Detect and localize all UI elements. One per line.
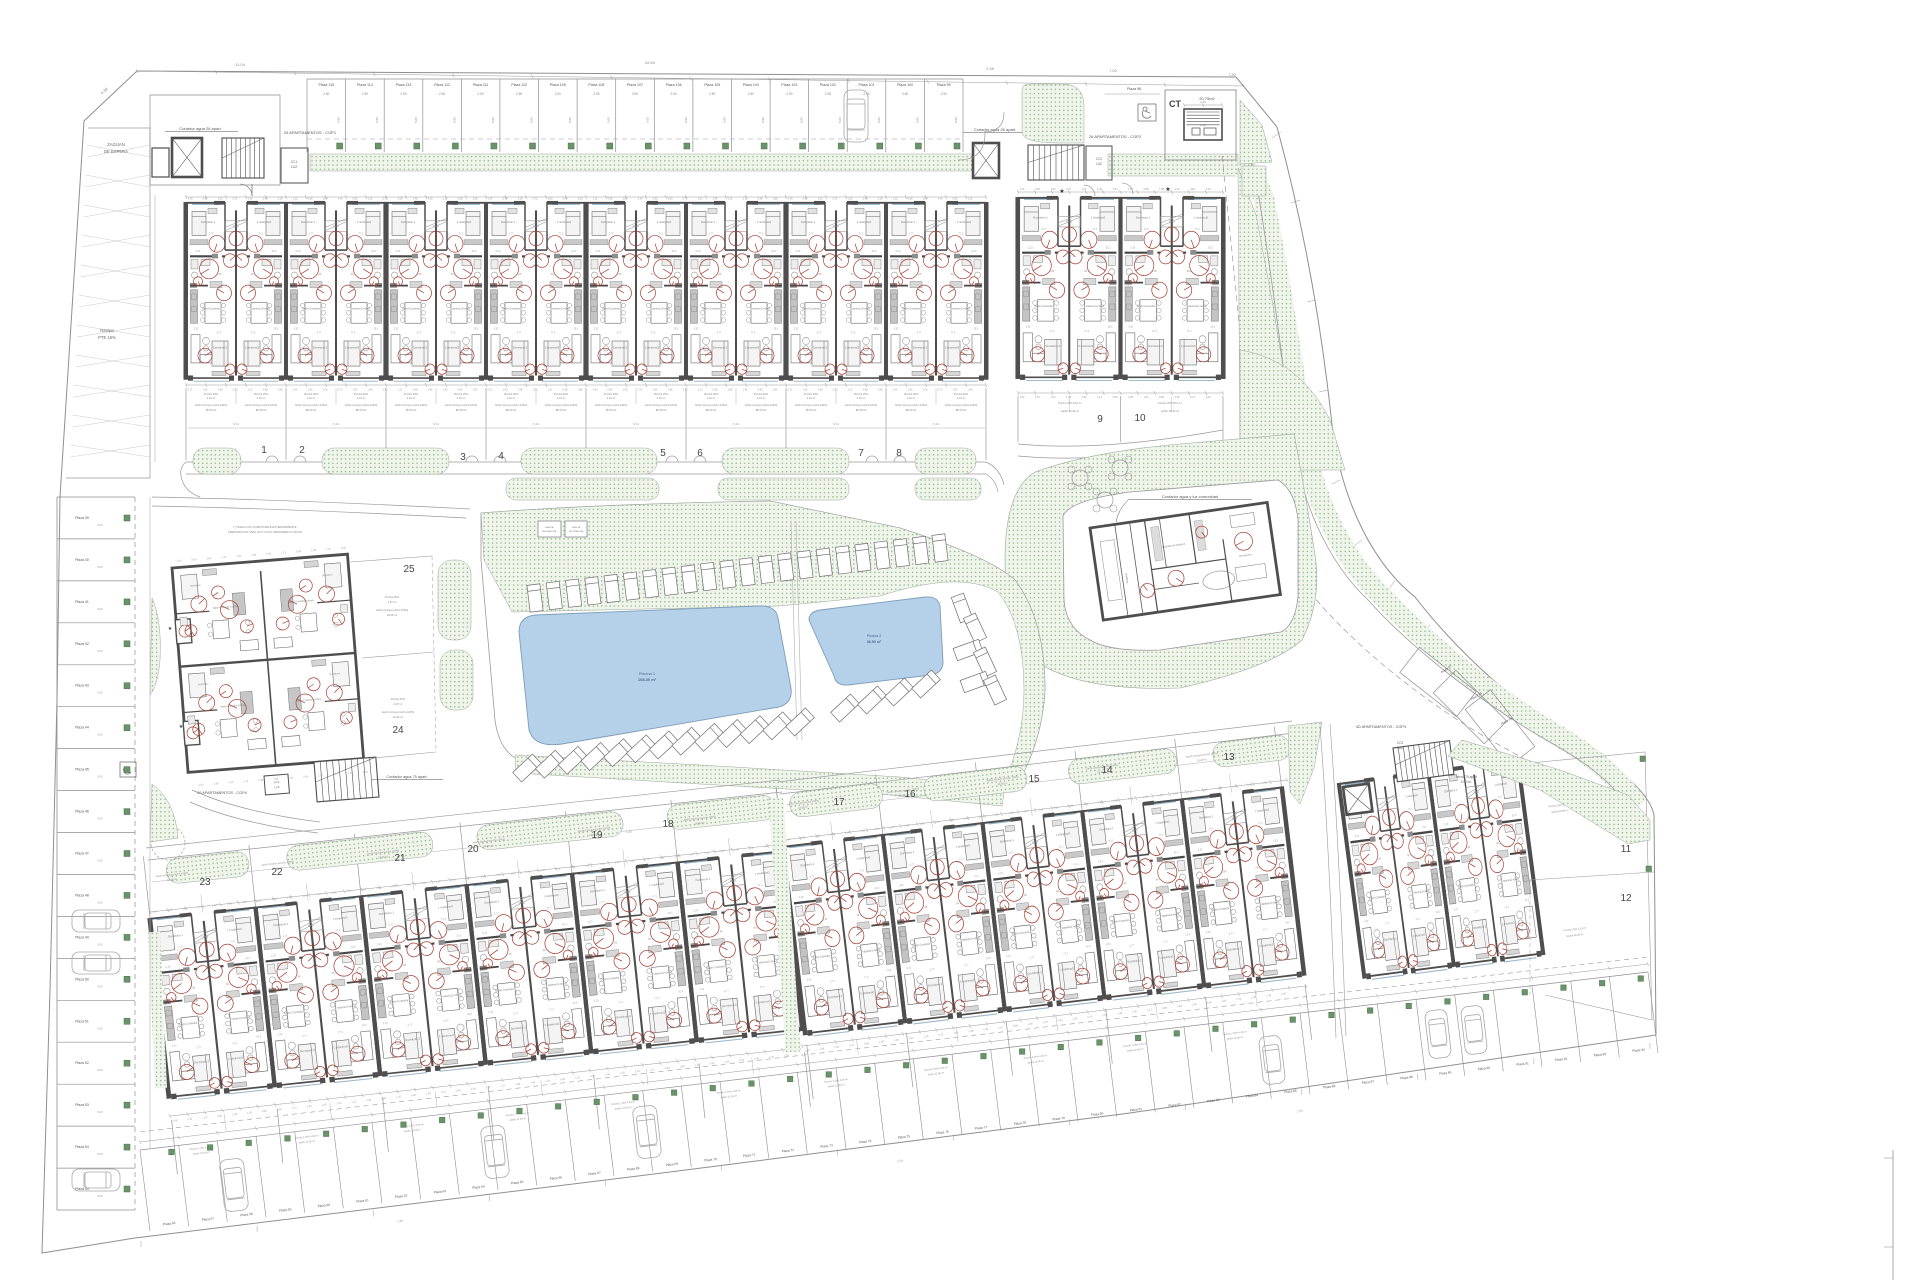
svg-text:Jardín (incluye porche 100%): Jardín (incluye porche 100%) [645, 404, 678, 407]
svg-text:1.48: 1.48 [1097, 188, 1102, 191]
svg-text:0.90: 0.90 [953, 198, 958, 201]
svg-text:1.88: 1.88 [550, 273, 555, 276]
svg-text:5.00: 5.00 [97, 984, 103, 988]
svg-text:Contador agua 75 apart.: Contador agua 75 apart. [386, 775, 427, 779]
svg-text:2.50: 2.50 [323, 92, 329, 96]
svg-text:5.00: 5.00 [97, 1026, 103, 1030]
svg-text:LUZ: LUZ [274, 785, 280, 789]
svg-text:5.00: 5.00 [97, 859, 103, 863]
svg-text:5.00: 5.00 [722, 117, 726, 123]
svg-text:Paso: Paso [1232, 816, 1238, 821]
svg-text:1.40: 1.40 [638, 198, 643, 201]
svg-text:Dormitorio 2: Dormitorio 2 [313, 345, 328, 349]
svg-text:1.40: 1.40 [293, 389, 298, 392]
svg-text:0.90: 0.90 [353, 198, 358, 201]
svg-text:5.00: 5.00 [838, 117, 842, 123]
svg-text:2.10: 2.10 [1200, 123, 1206, 127]
svg-text:13: 13 [1223, 752, 1235, 763]
svg-text:Jardín (incluye porche 100%): Jardín (incluye porche 100%) [545, 404, 578, 407]
svg-text:6: 6 [697, 448, 703, 459]
svg-text:1.60: 1.60 [1051, 396, 1056, 399]
svg-text:5.00: 5.00 [97, 775, 103, 779]
svg-text:2.77: 2.77 [350, 332, 355, 335]
svg-text:4.10 m²: 4.10 m² [357, 396, 366, 400]
svg-text:1.12: 1.12 [848, 389, 853, 392]
svg-text:Paso: Paso [730, 878, 737, 883]
svg-text:0.90: 0.90 [608, 389, 613, 392]
svg-text:1.50: 1.50 [623, 389, 628, 392]
svg-text:1.88: 1.88 [273, 777, 279, 780]
svg-text:Paso: Paso [519, 901, 526, 906]
svg-text:4.10 m²: 4.10 m² [807, 396, 816, 400]
svg-text:1.50: 1.50 [773, 389, 778, 392]
svg-text:0.98: 0.98 [308, 198, 313, 201]
svg-text:36.50 m²: 36.50 m² [867, 640, 882, 644]
svg-text:1.88: 1.88 [317, 273, 322, 276]
svg-text:2.23: 2.23 [1028, 246, 1033, 249]
svg-text:Salón-Comedor: Salón-Comedor [552, 307, 570, 311]
svg-text:1.50: 1.50 [818, 198, 823, 201]
svg-text:5.00: 5.00 [97, 1152, 103, 1156]
svg-text:Plaza 47: Plaza 47 [75, 852, 89, 856]
svg-text:3.32: 3.32 [873, 327, 878, 330]
svg-text:Salón-Comedor: Salón-Comedor [952, 307, 970, 311]
svg-text:Dormitorio 1: Dormitorio 1 [201, 220, 216, 224]
svg-text:2.77: 2.77 [809, 874, 815, 879]
svg-text:Paso: Paso [933, 225, 939, 228]
svg-text:Dormitorio 1: Dormitorio 1 [1033, 215, 1048, 219]
svg-text:0.98: 0.98 [1113, 396, 1118, 399]
svg-text:6.31: 6.31 [333, 422, 339, 426]
svg-text:2.77: 2.77 [750, 332, 755, 335]
svg-text:38.70 m²: 38.70 m² [656, 408, 667, 412]
svg-text:0.72: 0.72 [188, 389, 193, 392]
svg-text:Porche 25%: Porche 25% [654, 392, 669, 396]
svg-text:Paso: Paso [333, 225, 339, 228]
svg-text:2.30: 2.30 [228, 781, 234, 784]
svg-text:Jardín (incluye porche 100%): Jardín (incluye porche 100%) [745, 404, 778, 407]
svg-text:5.00: 5.00 [97, 942, 103, 946]
svg-text:Jardín (incluye porche 100%): Jardín (incluye porche 100%) [495, 404, 528, 407]
svg-text:Dormitorio 2: Dormitorio 2 [513, 345, 528, 349]
svg-text:1.40: 1.40 [788, 198, 793, 201]
svg-text:2.50: 2.50 [897, 1159, 904, 1164]
svg-text:4: 4 [498, 451, 504, 462]
svg-text:2.23: 2.23 [596, 250, 601, 253]
svg-text:2.77: 2.77 [758, 232, 763, 235]
svg-text:1.48: 1.48 [818, 389, 823, 392]
svg-text:0.72: 0.72 [221, 556, 227, 559]
svg-text:Jardín (incluye porche 100%): Jardín (incluye porche 100%) [295, 404, 328, 407]
svg-text:1.48: 1.48 [413, 198, 418, 201]
svg-text:Plaza 106: Plaza 106 [666, 83, 682, 87]
svg-text:Dormitorio 1: Dormitorio 1 [1193, 215, 1208, 219]
svg-text:2.77: 2.77 [1415, 918, 1420, 922]
svg-text:2.10: 2.10 [1200, 100, 1206, 104]
svg-text:DE ESPERA: DE ESPERA [104, 149, 128, 154]
svg-text:2.23: 2.23 [1511, 814, 1516, 818]
svg-text:Salón-Comedor: Salón-Comedor [502, 307, 520, 311]
svg-text:(URBANIZACION NIVEL ALTO A DOS: (URBANIZACION NIVEL ALTO A DOS CERRAMIEN… [228, 530, 303, 534]
svg-text:2.23: 2.23 [1130, 246, 1135, 249]
svg-text:5.00: 5.00 [915, 117, 919, 123]
svg-text:5.00: 5.00 [97, 900, 103, 904]
svg-text:2.77: 2.77 [517, 332, 522, 335]
svg-text:3.32: 3.32 [294, 327, 299, 330]
svg-text:0.72: 0.72 [788, 389, 793, 392]
svg-text:CASETA: CASETA [572, 526, 581, 529]
svg-text:3.00 m²: 3.00 m² [1461, 780, 1472, 784]
svg-text:1.60: 1.60 [236, 555, 242, 558]
svg-text:1.88: 1.88 [728, 389, 733, 392]
svg-text:0.98: 0.98 [758, 198, 763, 201]
svg-text:2.50: 2.50 [632, 92, 638, 96]
svg-text:Jardín (incluye porche 100%): Jardín (incluye porche 100%) [382, 711, 415, 714]
svg-text:4.10 m²: 4.10 m² [907, 396, 916, 400]
svg-text:Salón-Comedor: Salón-Comedor [452, 307, 470, 311]
svg-text:Salón-Comedor: Salón-Comedor [1188, 304, 1207, 308]
svg-text:Plaza 109: Plaza 109 [550, 83, 566, 87]
svg-text:0.90: 0.90 [908, 389, 913, 392]
svg-text:1.60: 1.60 [353, 389, 358, 392]
svg-text:Jardín 92.40 m²: Jardín 92.40 m² [1161, 409, 1179, 413]
svg-text:Porche 25%: Porche 25% [854, 392, 869, 396]
svg-text:2.23: 2.23 [896, 250, 901, 253]
svg-text:5.00: 5.00 [800, 117, 804, 123]
svg-text:2.50: 2.50 [748, 92, 754, 96]
svg-text:3.32: 3.32 [394, 327, 399, 330]
svg-text:4.10 m²: 4.10 m² [707, 396, 716, 400]
svg-text:Plaza 112: Plaza 112 [434, 83, 450, 87]
svg-text:★: ★ [1165, 186, 1170, 193]
svg-text:6.31: 6.31 [833, 422, 839, 426]
svg-text:0.98: 0.98 [908, 198, 913, 201]
svg-text:Plaza 43: Plaza 43 [75, 684, 89, 688]
svg-text:Plaza 52: Plaza 52 [75, 1061, 89, 1065]
svg-text:1.12: 1.12 [1097, 396, 1102, 399]
svg-text:0.72: 0.72 [1190, 396, 1195, 399]
svg-text:Plaza 54: Plaza 54 [75, 1145, 89, 1149]
svg-text:2.77: 2.77 [609, 232, 614, 235]
svg-text:1.40: 1.40 [176, 559, 182, 562]
svg-text:Salón-Comedor: Salón-Comedor [302, 307, 320, 311]
svg-text:Plaza 99: Plaza 99 [937, 83, 951, 87]
svg-text:20: 20 [467, 844, 479, 855]
svg-text:1.50: 1.50 [218, 198, 223, 201]
svg-text:1.88: 1.88 [817, 273, 822, 276]
svg-text:1.88: 1.88 [428, 389, 433, 392]
svg-text:2.50: 2.50 [1297, 1109, 1304, 1114]
svg-text:Dormitorio 2: Dormitorio 2 [644, 345, 659, 349]
svg-text:2.77: 2.77 [917, 332, 922, 335]
svg-text:2.23: 2.23 [796, 250, 801, 253]
svg-text:2.77: 2.77 [250, 332, 255, 335]
svg-text:Porche 25% 8.10 m²: Porche 25% 8.10 m² [1158, 401, 1182, 405]
svg-text:17: 17 [833, 797, 845, 808]
svg-text:38.70 m²: 38.70 m² [856, 408, 867, 412]
svg-text:4.10 m²: 4.10 m² [957, 396, 966, 400]
svg-text:LUZ: LUZ [1397, 746, 1403, 750]
svg-text:0.98: 0.98 [458, 198, 463, 201]
svg-text:Dormitorio 1: Dormitorio 1 [1090, 215, 1105, 219]
svg-text:Salón-Comedor: Salón-Comedor [1085, 304, 1104, 308]
svg-text:1.88: 1.88 [822, 916, 828, 921]
svg-text:Jardín (incluye porche 100%): Jardín (incluye porche 100%) [795, 404, 828, 407]
svg-text:2.23: 2.23 [571, 250, 576, 253]
svg-text:1.60: 1.60 [1206, 396, 1211, 399]
svg-text:38.70 m²: 38.70 m² [306, 408, 317, 412]
svg-text:1.88: 1.88 [850, 273, 855, 276]
svg-text:Jardín (incluye porche 100%): Jardín (incluye porche 100%) [695, 404, 728, 407]
svg-text:CC3: CC3 [1397, 741, 1404, 745]
svg-text:1.40: 1.40 [488, 198, 493, 201]
svg-text:1.60: 1.60 [803, 389, 808, 392]
svg-text:5.00: 5.00 [97, 733, 103, 737]
svg-text:Dormitorio 2: Dormitorio 2 [913, 345, 928, 349]
svg-text:Dormitorio 2: Dormitorio 2 [213, 345, 228, 349]
svg-text:Paso: Paso [624, 889, 631, 894]
svg-text:2.50: 2.50 [941, 92, 947, 96]
svg-text:0.98: 0.98 [863, 389, 868, 392]
svg-text:2.30: 2.30 [578, 198, 583, 201]
svg-text:1.48: 1.48 [863, 198, 868, 201]
svg-text:DEPURADORA: DEPURADORA [569, 530, 584, 533]
svg-text:DEPURADORA: DEPURADORA [542, 530, 557, 533]
svg-text:Paso: Paso [413, 912, 420, 917]
svg-text:1.12: 1.12 [248, 389, 253, 392]
svg-text:Dormitorio 2: Dormitorio 2 [1180, 344, 1195, 348]
svg-text:2.23: 2.23 [296, 250, 301, 253]
svg-text:0.72: 0.72 [938, 389, 943, 392]
svg-text:38.70 m²: 38.70 m² [706, 408, 717, 412]
svg-text:1.40: 1.40 [743, 389, 748, 392]
svg-text:1.48: 1.48 [218, 389, 223, 392]
svg-text:Porche 25%: Porche 25% [754, 392, 769, 396]
svg-text:1.50: 1.50 [518, 198, 523, 201]
svg-text:3.32: 3.32 [594, 327, 599, 330]
svg-text:38.70 m²: 38.70 m² [756, 408, 767, 412]
svg-text:1.50: 1.50 [206, 557, 212, 560]
svg-text:2.30: 2.30 [833, 389, 838, 392]
svg-text:6.31: 6.31 [633, 422, 639, 426]
svg-text:Piscina 2: Piscina 2 [867, 634, 882, 638]
svg-text:Salón-Comedor: Salón-Comedor [602, 307, 620, 311]
svg-text:0.90: 0.90 [191, 558, 197, 561]
svg-text:Dormitorio 2: Dormitorio 2 [344, 345, 359, 349]
svg-text:0.98: 0.98 [608, 198, 613, 201]
svg-text:Salón-Comedor: Salón-Comedor [402, 307, 420, 311]
svg-text:0.98: 0.98 [563, 389, 568, 392]
svg-text:4.10 m²: 4.10 m² [457, 396, 466, 400]
svg-text:1.60: 1.60 [653, 389, 658, 392]
svg-text:1.48: 1.48 [1066, 396, 1071, 399]
svg-text:38.70 m²: 38.70 m² [956, 408, 967, 412]
svg-text:2.50: 2.50 [593, 92, 599, 96]
svg-text:2.77: 2.77 [850, 332, 855, 335]
svg-text:4D APARTAMENTOS - CGP3: 4D APARTAMENTOS - CGP3 [1356, 725, 1406, 729]
svg-text:Dormitorio 1: Dormitorio 1 [356, 220, 371, 224]
svg-text:2.23: 2.23 [1105, 246, 1110, 249]
svg-text:2.23: 2.23 [1422, 825, 1427, 829]
svg-text:2.77: 2.77 [1049, 330, 1054, 333]
svg-text:0.72: 0.72 [1035, 396, 1040, 399]
svg-text:Dormitorio 1: Dormitorio 1 [801, 220, 816, 224]
svg-text:★: ★ [1059, 188, 1064, 195]
svg-text:38.70 m²: 38.70 m² [606, 408, 617, 412]
svg-text:Plaza 41: Plaza 41 [75, 600, 89, 604]
svg-text:Porche 25%: Porche 25% [304, 392, 319, 396]
svg-text:3.32: 3.32 [773, 327, 778, 330]
svg-text:Contador agua y luz comunidad: Contador agua y luz comunidad [1162, 494, 1218, 499]
svg-text:38.70 m²: 38.70 m² [356, 408, 367, 412]
svg-text:Salón-Comedor: Salón-Comedor [652, 307, 670, 311]
svg-text:2.77: 2.77 [217, 332, 222, 335]
svg-text:38.70 m²: 38.70 m² [256, 408, 267, 412]
svg-text:5.00: 5.00 [97, 1194, 103, 1198]
svg-text:Dormitorio 2: Dormitorio 2 [413, 345, 428, 349]
svg-text:Porche 25%: Porche 25% [454, 392, 469, 396]
svg-text:3.32: 3.32 [1435, 910, 1440, 914]
svg-text:1.88: 1.88 [750, 273, 755, 276]
svg-text:2.77: 2.77 [550, 332, 555, 335]
svg-text:0.98: 0.98 [413, 389, 418, 392]
svg-text:5.00: 5.00 [375, 117, 379, 123]
svg-text:2.30: 2.30 [1082, 396, 1087, 399]
svg-text:0.72: 0.72 [338, 389, 343, 392]
svg-text:Dormitorio 1: Dormitorio 1 [556, 220, 571, 224]
svg-text:Porche 25%: Porche 25% [385, 595, 400, 599]
svg-text:1.48: 1.48 [213, 782, 219, 785]
svg-text:Porche 25%: Porche 25% [504, 392, 519, 396]
svg-text:0.98: 0.98 [263, 389, 268, 392]
svg-text:2.23: 2.23 [671, 250, 676, 253]
svg-text:0.90: 0.90 [653, 198, 658, 201]
svg-text:Plaza 110: Plaza 110 [511, 83, 527, 87]
svg-text:Jardín (incluye porche 100%): Jardín (incluye porche 100%) [245, 404, 278, 407]
svg-text:5.00: 5.00 [97, 1068, 103, 1072]
svg-text:Salón-Comedor: Salón-Comedor [752, 307, 770, 311]
svg-text:Salón-Comedor: Salón-Comedor [202, 307, 220, 311]
svg-text:Plaza 98: Plaza 98 [1127, 87, 1141, 91]
svg-text:LUZ: LUZ [291, 165, 297, 169]
svg-text:4.10 m²: 4.10 m² [388, 600, 397, 604]
svg-text:1.12: 1.12 [893, 198, 898, 201]
svg-text:Porche 25%: Porche 25% [204, 392, 219, 396]
svg-text:4.10 m²: 4.10 m² [557, 396, 566, 400]
svg-text:2.23: 2.23 [799, 894, 805, 899]
svg-text:2.77: 2.77 [1144, 228, 1149, 231]
svg-text:Dormitorio 2: Dormitorio 2 [944, 345, 959, 349]
svg-text:Dormitorio 1: Dormitorio 1 [501, 220, 516, 224]
svg-text:15: 15 [1028, 774, 1040, 785]
svg-text:5.00: 5.00 [877, 117, 881, 123]
svg-text:38.70 m²: 38.70 m² [906, 408, 917, 412]
svg-text:2.77: 2.77 [1041, 228, 1046, 231]
svg-text:1.60: 1.60 [248, 198, 253, 201]
svg-text:Plaza 115: Plaza 115 [318, 83, 334, 87]
svg-text:Jardín (incluye porche 100%): Jardín (incluye porche 100%) [376, 609, 409, 612]
svg-text:1.88: 1.88 [1406, 853, 1411, 857]
svg-text:3.32: 3.32 [894, 327, 899, 330]
svg-text:6.31: 6.31 [533, 422, 539, 426]
svg-text:1.40: 1.40 [338, 198, 343, 201]
svg-text:Porche 25%: Porche 25% [704, 392, 719, 396]
svg-text:1.12: 1.12 [398, 389, 403, 392]
svg-text:2.50: 2.50 [439, 92, 445, 96]
svg-text:5: 5 [660, 448, 666, 459]
svg-text:2.77: 2.77 [309, 232, 314, 235]
svg-text:4.10 m²: 4.10 m² [657, 396, 666, 400]
svg-text:Jardín (incluye porche 100%): Jardín (incluye porche 100%) [395, 404, 428, 407]
svg-text:6.31: 6.31 [733, 422, 739, 426]
svg-text:Plaza 49: Plaza 49 [75, 935, 89, 939]
svg-text:2.30: 2.30 [278, 198, 283, 201]
svg-text:108.30 m²: 108.30 m² [638, 677, 657, 682]
svg-text:1.88: 1.88 [1084, 270, 1089, 273]
svg-text:1.60: 1.60 [203, 389, 208, 392]
svg-text:0.72: 0.72 [533, 198, 538, 201]
svg-text:2.77: 2.77 [1364, 813, 1369, 817]
svg-text:Paso: Paso [433, 225, 439, 228]
svg-text:Plaza 46: Plaza 46 [75, 810, 89, 814]
svg-text:4.07 m²: 4.07 m² [394, 702, 403, 706]
svg-text:5.00: 5.00 [954, 117, 958, 123]
svg-text:Dormitorio 1: Dormitorio 1 [656, 220, 671, 224]
svg-text:2.30: 2.30 [533, 389, 538, 392]
svg-text:11: 11 [1621, 844, 1632, 855]
svg-text:1.50: 1.50 [1175, 396, 1180, 399]
svg-text:4.10 m²: 4.10 m² [857, 396, 866, 400]
svg-text:Plaza 40: Plaza 40 [75, 558, 89, 562]
svg-text:1.60: 1.60 [848, 198, 853, 201]
svg-text:1.12: 1.12 [281, 551, 287, 554]
svg-text:2.23: 2.23 [771, 250, 776, 253]
svg-text:2.77: 2.77 [709, 232, 714, 235]
svg-text:1.50: 1.50 [968, 198, 973, 201]
svg-text:Paso: Paso [1066, 221, 1072, 224]
svg-text:1.60: 1.60 [198, 783, 204, 786]
svg-text:1: 1 [261, 445, 267, 456]
svg-text:2.77: 2.77 [909, 232, 914, 235]
svg-text:2.23: 2.23 [196, 250, 201, 253]
svg-text:0.90: 0.90 [341, 546, 347, 549]
svg-text:4.10 m²: 4.10 m² [407, 396, 416, 400]
svg-text:Paso: Paso [1032, 839, 1038, 844]
svg-text:5.00: 5.00 [97, 691, 103, 695]
svg-text:Dormitorio 1: Dormitorio 1 [401, 220, 416, 224]
svg-text:3.32: 3.32 [673, 327, 678, 330]
svg-text:2.23: 2.23 [1208, 246, 1213, 249]
svg-text:2.50: 2.50 [555, 92, 561, 96]
svg-text:Salón-Comedor: Salón-Comedor [1137, 304, 1156, 308]
svg-text:11.04: 11.04 [235, 62, 245, 67]
svg-text:26 APARTAMENTOS - CGP1: 26 APARTAMENTOS - CGP1 [284, 130, 337, 135]
svg-text:6.31: 6.31 [433, 422, 439, 426]
svg-text:2.23: 2.23 [371, 250, 376, 253]
svg-text:5.00: 5.00 [491, 117, 495, 123]
svg-text:1.50: 1.50 [668, 198, 673, 201]
svg-text:0.90: 0.90 [503, 198, 508, 201]
svg-text:Jardín (incluye porche 100%): Jardín (incluye porche 100%) [595, 404, 628, 407]
svg-text:20.90 m²: 20.90 m² [393, 715, 403, 719]
svg-text:Paso: Paso [633, 225, 639, 228]
svg-text:0.72: 0.72 [333, 773, 339, 776]
svg-text:6.31: 6.31 [933, 422, 939, 426]
svg-text:Dormitorio 2: Dormitorio 2 [1078, 344, 1093, 348]
svg-text:Plaza 107: Plaza 107 [627, 83, 643, 87]
svg-text:4.10 m²: 4.10 m² [507, 396, 516, 400]
svg-text:Dormitorio 1: Dormitorio 1 [1136, 215, 1151, 219]
